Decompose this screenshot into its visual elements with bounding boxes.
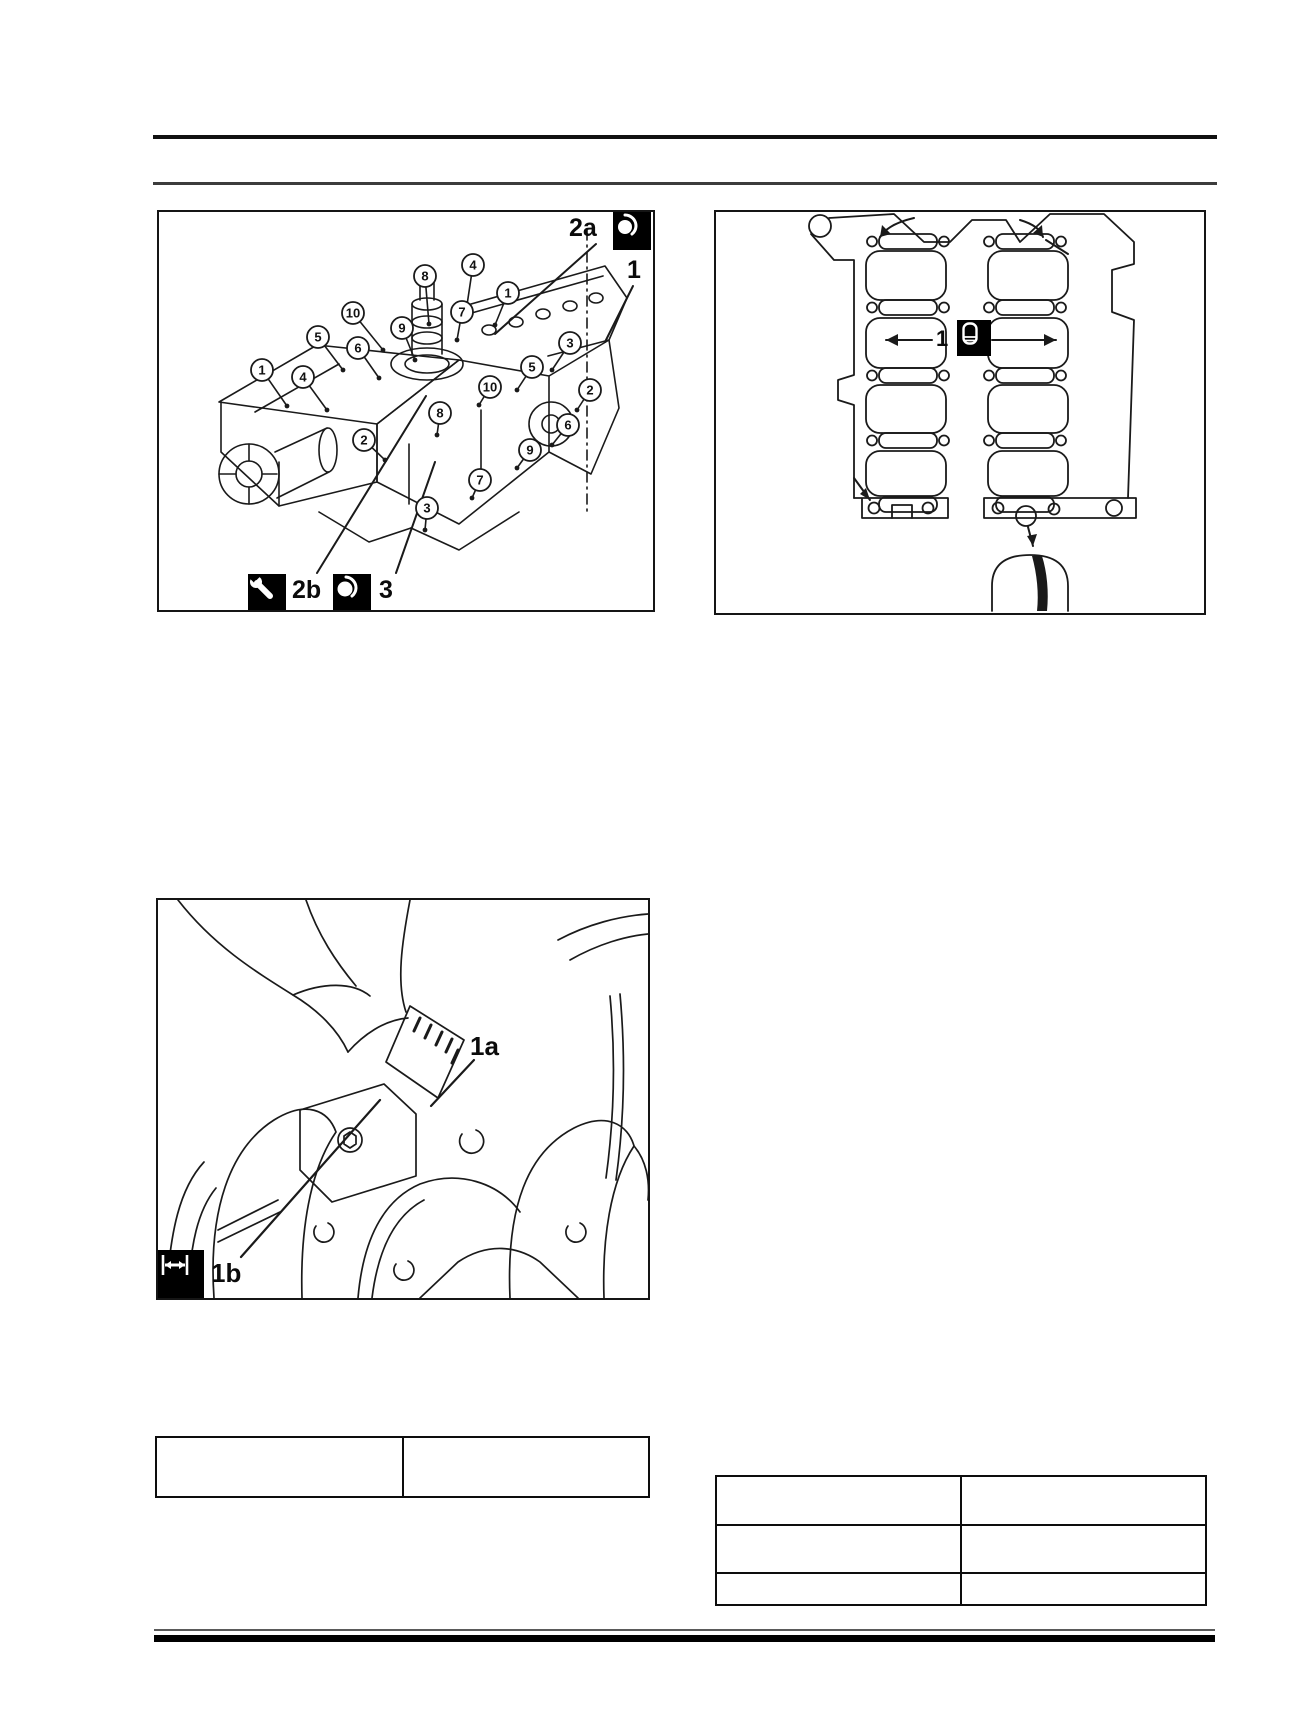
svg-text:2: 2 bbox=[586, 383, 593, 398]
svg-text:7: 7 bbox=[458, 305, 465, 320]
wrench-icon bbox=[248, 574, 286, 610]
callout-7: 7 bbox=[469, 469, 491, 500]
table-cell bbox=[962, 1477, 1205, 1524]
table-row bbox=[157, 1438, 648, 1496]
svg-text:10: 10 bbox=[346, 306, 360, 321]
svg-text:8: 8 bbox=[436, 406, 443, 421]
part-label-1: 1 bbox=[627, 258, 641, 283]
step-label-1b: 1b bbox=[211, 1260, 241, 1286]
seal-lubricant-icon bbox=[613, 212, 651, 250]
callout-10: 10 bbox=[477, 376, 501, 407]
svg-text:6: 6 bbox=[354, 341, 361, 356]
table-row bbox=[717, 1477, 1205, 1526]
table-cell bbox=[717, 1477, 962, 1524]
gasket-drawing bbox=[716, 212, 1204, 613]
callout-2: 2 bbox=[353, 429, 387, 462]
svg-text:1: 1 bbox=[504, 286, 511, 301]
table-cell bbox=[157, 1438, 404, 1496]
header-rule-thick bbox=[153, 135, 1217, 139]
spec-table-right bbox=[715, 1475, 1207, 1606]
header-rule-thin bbox=[153, 182, 1217, 185]
callout-6: 6 bbox=[347, 337, 381, 380]
svg-text:7: 7 bbox=[476, 473, 483, 488]
svg-text:1: 1 bbox=[258, 363, 265, 378]
engine-assembly-drawing: 1456109841735102869732 bbox=[159, 212, 653, 610]
footer-rule-thick bbox=[154, 1635, 1215, 1642]
figure-crankshaft-clearance: 1a 1b bbox=[156, 898, 650, 1300]
step-label-2b: 2b bbox=[292, 578, 321, 603]
table-row bbox=[717, 1526, 1205, 1574]
callout-5: 5 bbox=[307, 326, 345, 372]
table-cell bbox=[962, 1574, 1205, 1604]
seal-lubricant-icon bbox=[333, 574, 371, 610]
gasket-label-1: 1 bbox=[936, 328, 948, 350]
callout-1: 1 bbox=[251, 359, 289, 408]
sealant-tube-icon bbox=[957, 320, 991, 356]
callout-5: 5 bbox=[515, 356, 543, 392]
table-row bbox=[717, 1574, 1205, 1604]
callout-3: 3 bbox=[416, 497, 438, 532]
crankshaft-drawing bbox=[158, 900, 648, 1298]
footer-rule-thin bbox=[154, 1629, 1215, 1631]
svg-text:3: 3 bbox=[566, 336, 573, 351]
svg-text:8: 8 bbox=[421, 269, 428, 284]
figure-gasket: 1 bbox=[714, 210, 1206, 615]
step-label-2a: 2a bbox=[569, 216, 597, 241]
svg-text:5: 5 bbox=[528, 360, 535, 375]
measure-width-icon bbox=[158, 1250, 204, 1298]
table-cell bbox=[717, 1526, 962, 1572]
svg-text:9: 9 bbox=[398, 321, 405, 336]
svg-text:2: 2 bbox=[360, 433, 367, 448]
callout-1: 1 bbox=[493, 282, 519, 327]
table-cell bbox=[717, 1574, 962, 1604]
step-label-3: 3 bbox=[379, 578, 393, 603]
svg-text:5: 5 bbox=[314, 330, 321, 345]
step-label-1a: 1a bbox=[470, 1033, 499, 1059]
manual-page: 1456109841735102869732 2a 1 2b 3 bbox=[0, 0, 1300, 1734]
callout-9: 9 bbox=[515, 439, 541, 470]
svg-text:6: 6 bbox=[564, 418, 571, 433]
table-cell bbox=[404, 1438, 649, 1496]
svg-text:4: 4 bbox=[299, 370, 307, 385]
callout-4: 4 bbox=[462, 254, 484, 307]
figure-engine-assembly: 1456109841735102869732 2a 1 2b 3 bbox=[157, 210, 655, 612]
callout-7: 7 bbox=[451, 301, 473, 342]
svg-text:9: 9 bbox=[526, 443, 533, 458]
table-cell bbox=[962, 1526, 1205, 1572]
callout-8: 8 bbox=[429, 402, 451, 437]
svg-text:10: 10 bbox=[483, 380, 497, 395]
svg-text:4: 4 bbox=[469, 258, 477, 273]
svg-text:3: 3 bbox=[423, 501, 430, 516]
spec-table-left bbox=[155, 1436, 650, 1498]
